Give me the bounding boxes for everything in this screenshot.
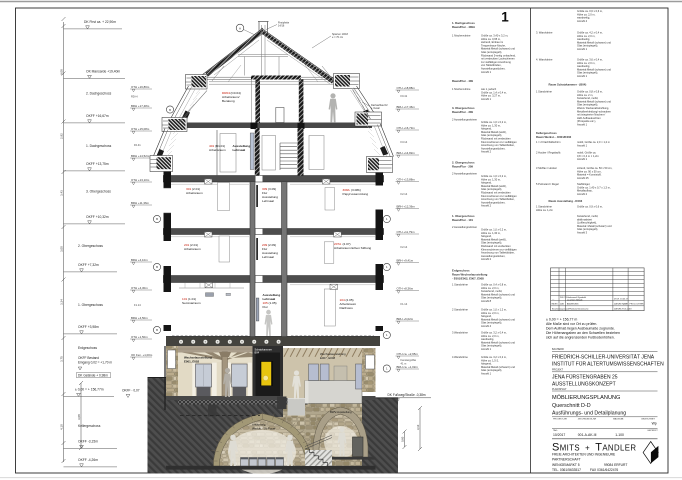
svg-text:A: A [239,26,241,30]
svg-text:2 Ausstellungsvitrinen: 2 Ausstellungsvitrinen [452,225,478,229]
svg-text:Fenstergröße: Fenstergröße [401,358,417,362]
svg-text:F0.41: F0.41 [134,143,141,147]
svg-text:2,92: 2,92 [59,133,63,139]
svg-text:- E001/E002, E007, E00: - E001/E002, E007, E008 [452,277,484,281]
svg-text:Beratung: Beratung [222,99,235,103]
svg-text:Anzahl 4: Anzahl 4 [481,324,492,328]
svg-text:OKFF +16,67m: OKFF +16,67m [86,114,109,118]
svg-text:Dia/Fotos: Dia/Fotos [340,306,354,310]
svg-text:Arbeitsraum: Arbeitsraum [184,247,201,251]
svg-text:Flur: Flur [263,305,268,309]
svg-text:TEL. 0361/5633517: TEL. 0361/5633517 [552,468,581,472]
svg-text:BRH +11,36m: BRH +11,36m [131,201,150,205]
svg-text:DK Fußweg/Straße -0,38m: DK Fußweg/Straße -0,38m [388,393,426,397]
svg-text:001-A-AK-III: 001-A-AK-III [578,433,597,437]
svg-text:3. Wandvitrine: 3. Wandvitrine [536,31,553,35]
svg-text:ÄNDERUNG: ÄNDERUNG [567,303,579,306]
svg-text:BRH +14,52m: BRH +14,52m [131,154,150,158]
svg-text:BRH +4,10m: BRH +4,10m [131,258,148,262]
svg-text:5 Putzwand / Regal: 5 Putzwand / Regal [536,182,559,186]
svg-text:10/2017: 10/2017 [553,433,565,437]
svg-text:B: B [169,108,171,112]
svg-text:Anzahl 1: Anzahl 1 [481,97,492,101]
svg-text:OTH +8,36m: OTH +8,36m [397,287,414,291]
svg-text:± 0,00 = + 156,77 m: ± 0,00 = + 156,77 m [546,318,577,322]
svg-text:F2.14: F2.14 [401,192,408,196]
svg-text:MÖBLIERUNGSPLANUNG: MÖBLIERUNGSPLANUNG [552,394,620,401]
svg-text:Anzahl 1: Anzahl 1 [481,70,492,74]
svg-text:3 Sitzflax / Hocker: 3 Sitzflax / Hocker [536,166,557,170]
svg-text:Raum Ausstellung - K003: Raum Ausstellung - K003 [549,199,583,203]
svg-text:3. Obergeschoss: 3. Obergeschoss [86,190,111,194]
svg-text:OTH +16,86m: OTH +16,86m [131,85,150,89]
svg-text:Anzahl 1: Anzahl 1 [577,123,588,127]
svg-text:GEZEICHNET: GEZEICHNET [641,419,656,421]
svg-text:INSTITUT FÜR ALTERTUMSWISSENSC: INSTITUT FÜR ALTERTUMSWISSENSCHAFTEN [552,361,664,368]
svg-text:OTH +11,79m: OTH +11,79m [397,230,416,234]
svg-text:4 Wandvitrine: 4 Wandvitrine [452,355,468,359]
svg-text:OTH +13,88m: OTH +13,88m [397,178,416,182]
svg-text:BRH ca. +1,02m: BRH ca. +1,02m [397,365,419,369]
svg-text:B04: B04 [255,351,260,355]
svg-text:Anzahl 2: Anzahl 2 [577,192,588,196]
svg-text:2 Ausstellungsvitrinen: 2 Ausstellungsvitrinen [452,118,478,122]
svg-text:3,08: 3,08 [77,414,81,420]
svg-text:2 Standvitrine: 2 Standvitrine [452,308,468,312]
svg-text:e = 70 cm: e = 70 cm [332,36,343,39]
svg-text:F2.14: F2.14 [401,245,408,249]
svg-text:Alle Maße sind vor Ort zu prüf: Alle Maße sind vor Ort zu prüfen. [546,322,597,326]
svg-text:Raum/Flur - 409: Raum/Flur - 409 [452,79,473,83]
svg-text:OK Mansarde +19,40m: OK Mansarde +19,40m [86,70,120,74]
svg-text:Die Höhenangaben an den Schwel: Die Höhenangaben an den Schwellen bezieh… [546,331,620,335]
svg-text:B: B [156,217,158,221]
svg-text:Raum/Flur - 409A: Raum/Flur - 409A [452,25,475,29]
svg-text:Werkst.- JN-Foyer: Werkst.- JN-Foyer [252,426,275,430]
svg-text:PARTNERSCHAFT: PARTNERSCHAFT [552,457,581,461]
svg-text:DK Gelände + 0,98m: DK Gelände + 0,98m [78,374,108,378]
svg-text:OKFF Bestand: OKFF Bestand [78,356,99,360]
svg-text:Arbeitsraum: Arbeitsraum [209,148,226,152]
svg-text:Anzahl 4: Anzahl 4 [577,19,588,23]
svg-text:BRH +12,36m: BRH +12,36m [397,205,416,209]
svg-text:DATUM 29.01.2018: DATUM 29.01.2018 [614,307,632,310]
svg-text:DATUM/ NAME: DATUM/ NAME [614,303,629,306]
svg-text:Raum Werkst. - K001/K002: Raum Werkst. - K001/K002 [536,135,572,139]
svg-text:Kellergeschoss: Kellergeschoss [78,424,101,428]
svg-text:JENA FÜRSTENGRABEN 25: JENA FÜRSTENGRABEN 25 [552,373,618,380]
svg-text:OKFF - 0,07: OKFF - 0,07 [122,389,140,393]
svg-text:TAG: TAG [553,429,558,432]
svg-text:1 Nischenvitrine: 1 Nischenvitrine [452,34,471,38]
svg-text:AUSSTELLUNGSKONZEPT: AUSSTELLUNGSKONZEPT [552,381,616,387]
svg-text:OKFF +13,75m: OKFF +13,75m [86,162,109,166]
svg-text:BAUHERR: BAUHERR [552,348,564,351]
svg-text:Anzahl 3: Anzahl 3 [577,231,588,235]
svg-text:Lehrsaal: Lehrsaal [262,199,274,203]
svg-text:2. Dachgeschoss: 2. Dachgeschoss [86,92,112,96]
svg-text:PROJ./ LEITER: PROJ./ LEITER [630,304,645,306]
svg-text:Arbeitsraum Erben Stiftung: Arbeitsraum Erben Stiftung [334,246,371,250]
svg-text:1. Obergeschoss: 1. Obergeschoss [78,303,103,307]
svg-text:E007, E008: E007, E008 [320,356,336,360]
svg-text:Raum/Flur - 101: Raum/Flur - 101 [452,218,473,222]
svg-text:(1.05): (1.05) [269,301,277,305]
svg-text:± 0,00 = + 156,77m: ± 0,00 = + 156,77m [75,388,104,392]
svg-text:DK First ca. + 22,90m: DK First ca. + 22,90m [84,20,116,24]
svg-text:OKFF -3,15m: OKFF -3,15m [78,440,98,444]
svg-text:29.09. 13.05.17: 29.09. 13.05.17 [614,299,629,301]
svg-text:Anzahl 2: Anzahl 2 [481,257,492,261]
svg-text:Papyrussammlung: Papyrussammlung [343,192,369,196]
svg-text:Eingang 0,02 = +1,70 m: Eingang 0,02 = +1,70 m [78,361,112,365]
svg-text:OTH +4,30m: OTH +4,30m [131,286,148,290]
svg-text:B: B [156,328,158,332]
svg-text:1 Nischenvitrine: 1 Nischenvitrine [452,87,471,91]
svg-text:F1.14: F1.14 [134,303,141,307]
svg-text:B: B [156,265,158,269]
svg-text:3,00: 3,00 [59,246,63,252]
svg-text:2 Ausstellungsvitrinen: 2 Ausstellungsvitrinen [452,172,478,176]
svg-text:Anzahl 2: Anzahl 2 [481,204,492,208]
svg-text:Raum Schatzkammer - (B04): Raum Schatzkammer - (B04) [549,83,587,87]
svg-text:(3.09): (3.09) [268,187,276,191]
svg-text:PROJEKT-NR: PROJEKT-NR [553,419,567,421]
svg-text:(2.09): (2.09) [268,243,276,247]
svg-text:Anzahl 2: Anzahl 2 [481,150,492,154]
svg-text:1. Dachgeschoss: 1. Dachgeschoss [86,144,112,148]
svg-text:1: 1 [501,10,509,25]
svg-text:BRH +9,41m: BRH +9,41m [397,259,414,263]
svg-text:1 Standvitrine: 1 Standvitrine [452,283,468,287]
svg-text:Bearbeitungsstand/Plotdatum/Da: Bearbeitungsstand/Plotdatum/Dateiname [552,307,589,310]
svg-text:1 = 2 Flachbildschirm: 1 = 2 Flachbildschirm [536,140,561,144]
svg-text:BRH +17,48m: BRH +17,48m [131,104,150,108]
svg-text:PLANINHALT: PLANINHALT [552,388,567,391]
svg-text:1 Standvitrine: 1 Standvitrine [536,90,552,94]
svg-text:0,60: 0,60 [401,436,405,442]
svg-text:41 m: 41 m [401,362,407,366]
svg-text:BWV-Ausstellung: BWV-Ausstellung [330,410,352,414]
svg-text:F1.14: F1.14 [401,302,408,306]
svg-text:Lehrsaal: Lehrsaal [233,148,246,152]
svg-text:OKFF +3,98m: OKFF +3,98m [78,325,99,329]
svg-text:3,34: 3,34 [59,299,63,305]
svg-text:FAX 0361/6422476: FAX 0361/6422476 [590,468,618,472]
svg-text:FRIEDRICH-SCHILLER-UNIVERSITÄT: FRIEDRICH-SCHILLER-UNIVERSITÄT JENA [552,354,655,361]
svg-text:Anzahl 1: Anzahl 1 [577,143,588,147]
svg-text:INDEX: INDEX [552,304,559,306]
svg-text:2 Hocker / Regalaufb.: 2 Hocker / Regalaufb. [536,151,561,155]
svg-text:OTH +15,08m: OTH +15,08m [131,127,150,131]
svg-text:99084 ERFURT: 99084 ERFURT [604,463,627,467]
svg-text:OTH ca. +2,95m: OTH ca. +2,95m [397,352,419,356]
svg-text:Erdgeschoss: Erdgeschoss [78,346,97,350]
svg-text:PROJEKT: PROJEKT [552,369,564,372]
svg-text:s. Detail: s. Detail [371,107,380,110]
svg-text:MASSTAB: MASSTAB [613,418,624,421]
svg-text:14/16: 14/16 [278,24,285,27]
svg-text:Anzahl 1: Anzahl 1 [481,372,492,376]
svg-text:4,10: 4,10 [59,424,63,430]
svg-text:OTH +16,73m: OTH +16,73m [397,126,416,130]
svg-text:Höhe ca. 1,2m: Höhe ca. 1,2m [536,208,553,212]
svg-text:OKFF +7,32m: OKFF +7,32m [78,263,99,267]
svg-text:BRH +14,82m: BRH +14,82m [397,151,416,155]
svg-text:E001, E002: E001, E002 [184,359,200,363]
svg-text:GEPRÜFT: GEPRÜFT [647,429,658,432]
svg-text:FREIE ARCHITEKTEN UND INGEN: FREIE ARCHITEKTEN UND INGENIEURE [552,453,616,457]
svg-text:RD-H: RD-H [131,95,138,99]
svg-text:Dem Aufmaß liegen Ausbaumaße z: Dem Aufmaß liegen Ausbaumaße zugrunde. [546,327,615,331]
svg-text:1-100: 1-100 [615,433,624,437]
svg-text:Anzahl 1: Anzahl 1 [481,347,492,351]
svg-text:WENIGEMARKT 5: WENIGEMARKT 5 [552,463,580,467]
svg-text:Arbeitsraum: Arbeitsraum [186,191,203,195]
svg-text:OKFF +10,32m: OKFF +10,32m [86,215,109,219]
svg-text:OK Fen. +1,00m: OK Fen. +1,00m [131,353,153,357]
svg-text:BRH +6,02m: BRH +6,02m [397,317,414,321]
svg-text:Lehrsaal: Lehrsaal [262,255,274,259]
svg-text:3 Wandvitrine: 3 Wandvitrine [452,331,468,335]
svg-text:Leuchten (Wand): Leuchten (Wand) [567,299,583,302]
svg-text:sich auf die angrenzenden Fußb: sich auf die angrenzenden Fußbodenhöhen. [546,336,615,340]
svg-text:3,75: 3,75 [59,356,63,362]
svg-text:Ausführungs- und Detailplanung: Ausführungs- und Detailplanung [552,410,626,416]
svg-text:Größe ca. 0,9 x 0,6 m,: Größe ca. 0,9 x 0,6 m, [577,205,603,209]
svg-text:3,10: 3,10 [416,424,420,430]
svg-text:Anzahl 1: Anzahl 1 [577,157,588,161]
svg-text:ZEICHNUNGS-NR: ZEICHNUNGS-NR [578,419,597,421]
svg-text:F3.14: F3.14 [401,140,408,144]
svg-text:Raum/Flur - 209: Raum/Flur - 209 [452,165,473,169]
svg-text:Anzahl 1: Anzahl 1 [577,47,588,51]
svg-text:3,43: 3,43 [59,190,63,196]
svg-text:Raum/Flur - 309: Raum/Flur - 309 [452,110,473,114]
svg-text:DAT.: DAT. [560,303,565,306]
svg-text:4,08: 4,08 [59,69,63,75]
svg-text:Seminarraum: Seminarraum [182,301,201,305]
svg-text:Anzahl 25: Anzahl 25 [577,176,589,180]
svg-text:4. Wandvitrine: 4. Wandvitrine [536,58,553,62]
svg-text:Anzahl 8: Anzahl 8 [481,299,492,303]
svg-text:OTH +1,50m: OTH +1,50m [131,335,148,339]
svg-text:OKFF -4,26m: OKFF -4,26m [78,458,98,462]
svg-text:OTH +18,88m: OTH +18,88m [397,86,416,90]
svg-text:Wp: Wp [652,422,657,426]
svg-text:BRH +17,46m: BRH +17,46m [397,105,416,109]
svg-text:BRH +4,50m: BRH +4,50m [131,316,148,320]
svg-text:2. Obergeschoss: 2. Obergeschoss [78,244,103,248]
svg-text:OTH +13,10m: OTH +13,10m [131,178,150,182]
svg-text:Anzahl 1: Anzahl 1 [577,74,588,78]
svg-text:F0.41: F0.41 [401,94,408,98]
svg-text:Querschnitt D-D: Querschnitt D-D [552,403,591,409]
